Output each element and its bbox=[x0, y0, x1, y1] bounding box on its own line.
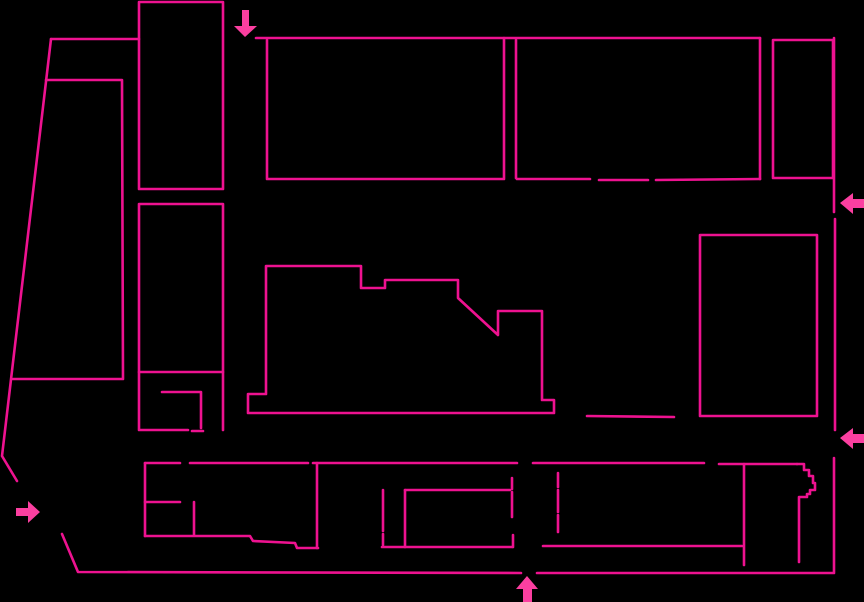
boundary-south-east bbox=[537, 458, 834, 573]
site-plan-diagram bbox=[0, 0, 864, 602]
south-band-bottom-west bbox=[145, 536, 318, 548]
north-building-a bbox=[267, 38, 504, 179]
west-building bbox=[139, 204, 223, 372]
east-building bbox=[700, 235, 817, 416]
west-annex-west-south bbox=[139, 372, 188, 430]
boundary-southwest bbox=[62, 534, 521, 573]
central-walkway-line bbox=[587, 416, 674, 417]
entrance-arrow-east-upper bbox=[840, 193, 864, 214]
west-annex-hook bbox=[162, 392, 201, 428]
boundary-west-slant bbox=[2, 39, 51, 481]
north-building-b-south-3 bbox=[656, 179, 760, 180]
south-band-stair-edge bbox=[797, 464, 815, 562]
north-building-c bbox=[773, 40, 833, 178]
floorplan-canvas bbox=[0, 0, 864, 602]
entrance-arrow-east-lower bbox=[840, 428, 864, 449]
entrance-arrow-north bbox=[234, 10, 257, 37]
entrance-arrow-south bbox=[516, 576, 538, 602]
northwest-tall-building bbox=[139, 2, 223, 189]
entrance-arrow-west bbox=[16, 501, 40, 523]
central-building bbox=[248, 266, 554, 413]
